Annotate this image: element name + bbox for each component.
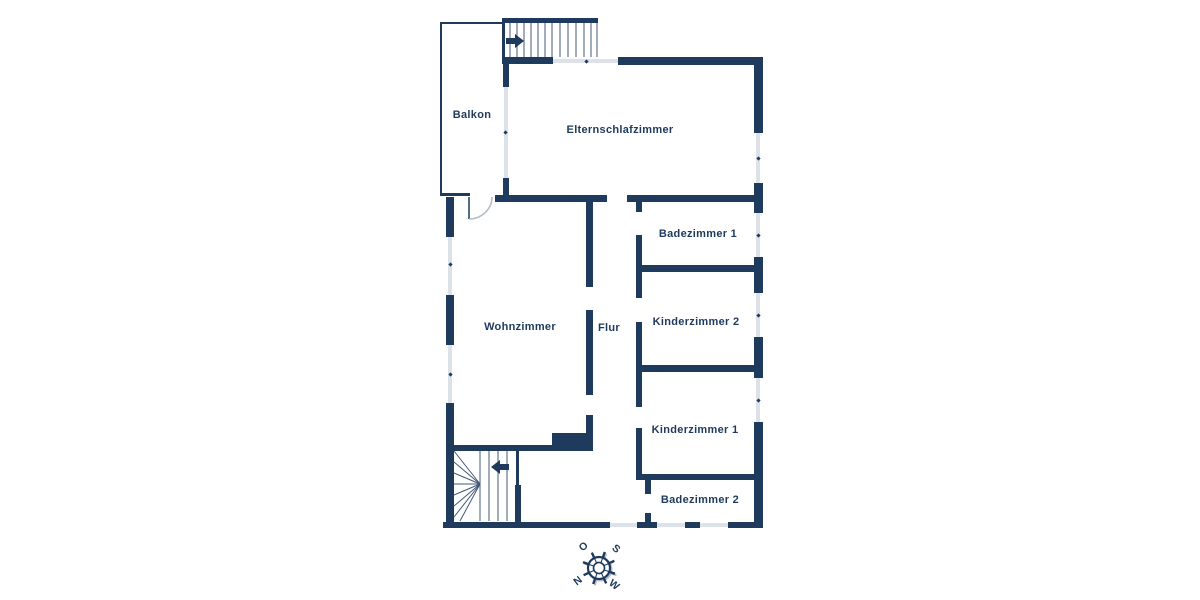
stair-arrow-right-icon [506,34,524,48]
room-label-flur: Flur [598,322,620,334]
compass-letter-south: S [609,542,622,556]
plan-vector-overlay: O S N W [0,0,1200,600]
compass-letter-north: N [571,574,584,588]
room-label-balkon: Balkon [453,109,491,121]
upper-staircase [510,23,597,57]
room-label-elternschlafzimmer: Elternschlafzimmer [567,124,674,136]
room-label-kinderzimmer-2: Kinderzimmer 2 [653,316,740,328]
room-label-kinderzimmer-1: Kinderzimmer 1 [652,424,739,436]
floor-plan-canvas: O S N W Balkon Elternschlafzimmer Badezi… [0,0,1200,600]
compass-rose-icon: O S N W [571,540,622,593]
compass-letter-west: W [606,577,621,593]
room-label-badezimmer-1: Badezimmer 1 [659,228,737,240]
room-label-badezimmer-2: Badezimmer 2 [661,494,739,506]
room-label-wohnzimmer: Wohnzimmer [484,321,556,333]
balcony-door-arc [469,197,492,219]
compass-letter-east: O [577,540,591,554]
stair-arrow-left-icon [491,460,509,474]
